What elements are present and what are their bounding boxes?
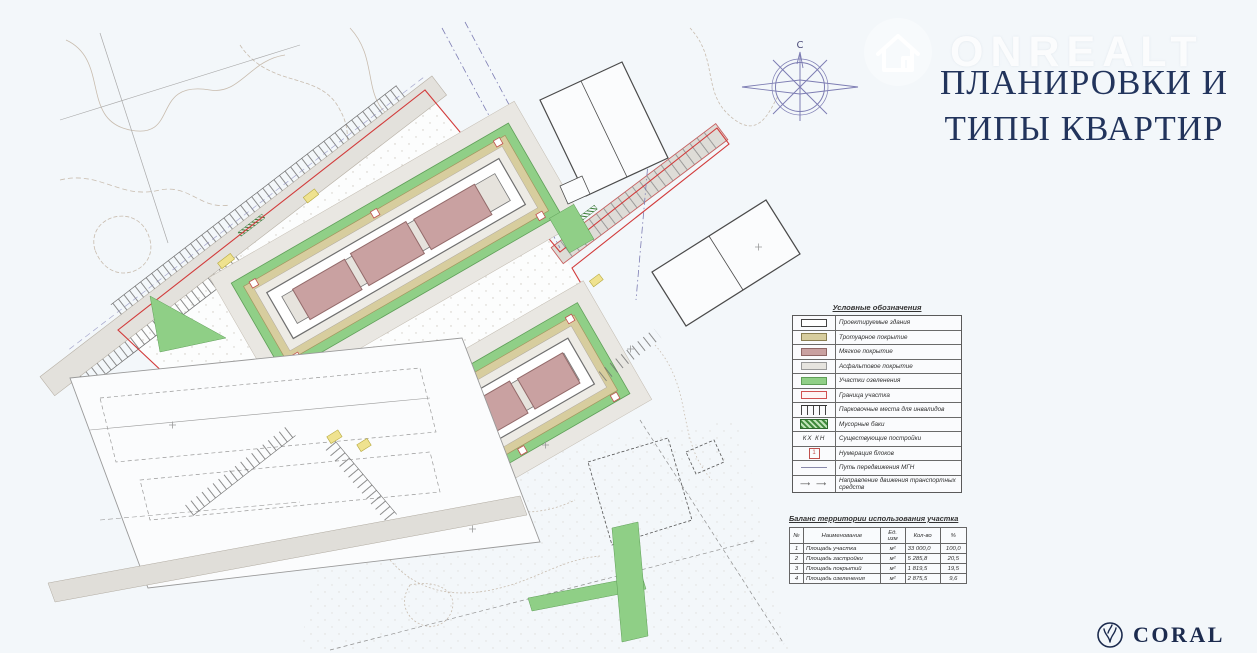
footer-logo-brand: CORAL — [1133, 622, 1225, 648]
col-header: Ед. изм — [880, 528, 905, 544]
cell: Площадь озеленения — [803, 574, 880, 584]
legend-label: Направление движения транспортных средст… — [836, 476, 961, 492]
cell: Площадь застройки — [803, 554, 880, 564]
cell: м² — [880, 564, 905, 574]
legend-label: Граница участка — [836, 391, 961, 400]
page: С ONREALT ПЛАНИРОВКИ И ТИПЫ КВАРТИР Усло… — [0, 0, 1257, 653]
legend-label: Мягкое покрытие — [836, 347, 961, 356]
legend-row: ⟶ ⟶ Направление движения транспортных ср… — [793, 476, 961, 492]
legend-title: Условные обозначения — [792, 303, 962, 312]
cell: 9,6 — [940, 574, 966, 584]
legend-row: Мягкое покрытие — [793, 345, 961, 360]
disabled-parking-swatch — [801, 405, 827, 415]
col-header: % — [940, 528, 966, 544]
legend-label: Путь передвижения МГН — [836, 463, 961, 472]
legend-label: Участки озеленения — [836, 376, 961, 385]
greenery-swatch — [801, 377, 827, 385]
table-row: 2 Площадь застройки м² 5 285,8 20,5 — [790, 554, 967, 564]
balance-header-row: № Наименование Ед. изм Кол-во % — [790, 528, 967, 544]
page-title-line2: ТИПЫ КВАРТИР — [925, 106, 1243, 152]
legend-row: Асфальтовое покрытие — [793, 360, 961, 375]
legend-label: Существующие постройки — [836, 434, 961, 443]
balance-title: Баланс территории использования участка — [789, 514, 967, 523]
col-header: Наименование — [803, 528, 880, 544]
legend-label: Парковочные места для инвалидов — [836, 405, 961, 414]
territory-balance: Баланс территории использования участка … — [789, 514, 967, 584]
footer-logo: CORAL — [1096, 621, 1225, 649]
table-row: 4 Площадь озеленения м² 2 875,5 9,6 — [790, 574, 967, 584]
col-header: № — [790, 528, 804, 544]
legend-row: 1 Нумерация блоков — [793, 447, 961, 462]
cell: 5 285,8 — [905, 554, 940, 564]
traffic-direction-swatch: ⟶ ⟶ — [800, 480, 828, 488]
cell: 1 819,5 — [905, 564, 940, 574]
cell: Площадь участка — [803, 544, 880, 554]
cell: 19,5 — [940, 564, 966, 574]
cell: 1 — [790, 544, 804, 554]
legend-label: Асфальтовое покрытие — [836, 362, 961, 371]
cell: 33 000,0 — [905, 544, 940, 554]
cell: Площадь покрытий — [803, 564, 880, 574]
coral-icon — [1096, 621, 1124, 649]
mgn-path-swatch — [801, 467, 827, 468]
cell: 2 875,5 — [905, 574, 940, 584]
legend-label: Проектируемые здания — [836, 318, 961, 327]
legend-row: Проектируемые здания — [793, 316, 961, 331]
legend-row: Путь передвижения МГН — [793, 461, 961, 476]
legend-label: Тротуарное покрытие — [836, 333, 961, 342]
cell: м² — [880, 574, 905, 584]
legend-row: Тротуарное покрытие — [793, 331, 961, 346]
legend-row: Граница участка — [793, 389, 961, 404]
table-row: 1 Площадь участка м² 33 000,0 100,0 — [790, 544, 967, 554]
legend-label: Нумерация блоков — [836, 449, 961, 458]
trash-bins-swatch — [800, 419, 828, 429]
col-header: Кол-во — [905, 528, 940, 544]
cell: м² — [880, 544, 905, 554]
legend-row: КХ КН Существующие постройки — [793, 432, 961, 447]
block-number-swatch: 1 — [809, 448, 820, 459]
site-boundary-swatch — [801, 391, 827, 399]
legend-table: Проектируемые здания Тротуарное покрытие… — [792, 315, 962, 493]
balance-table: № Наименование Ед. изм Кол-во % 1 Площад… — [789, 527, 967, 584]
legend-row: Парковочные места для инвалидов — [793, 403, 961, 418]
cell: м² — [880, 554, 905, 564]
legend-row: Участки озеленения — [793, 374, 961, 389]
legend-label: Мусорные баки — [836, 420, 961, 429]
page-title: ПЛАНИРОВКИ И ТИПЫ КВАРТИР — [925, 60, 1243, 152]
cell: 4 — [790, 574, 804, 584]
sidewalk-cover-swatch — [801, 333, 827, 341]
cell: 2 — [790, 554, 804, 564]
projected-buildings-swatch — [801, 319, 827, 327]
legend-row: Мусорные баки — [793, 418, 961, 433]
soft-cover-swatch — [801, 348, 827, 356]
cell: 3 — [790, 564, 804, 574]
cell: 20,5 — [940, 554, 966, 564]
cell: 100,0 — [940, 544, 966, 554]
asphalt-cover-swatch — [801, 362, 827, 370]
page-title-line1: ПЛАНИРОВКИ И — [925, 60, 1243, 106]
compass-north-label: С — [797, 40, 804, 51]
legend: Условные обозначения Проектируемые здани… — [792, 303, 962, 493]
table-row: 3 Площадь покрытий м² 1 819,5 19,5 — [790, 564, 967, 574]
existing-buildings-swatch: КХ КН — [803, 435, 826, 442]
